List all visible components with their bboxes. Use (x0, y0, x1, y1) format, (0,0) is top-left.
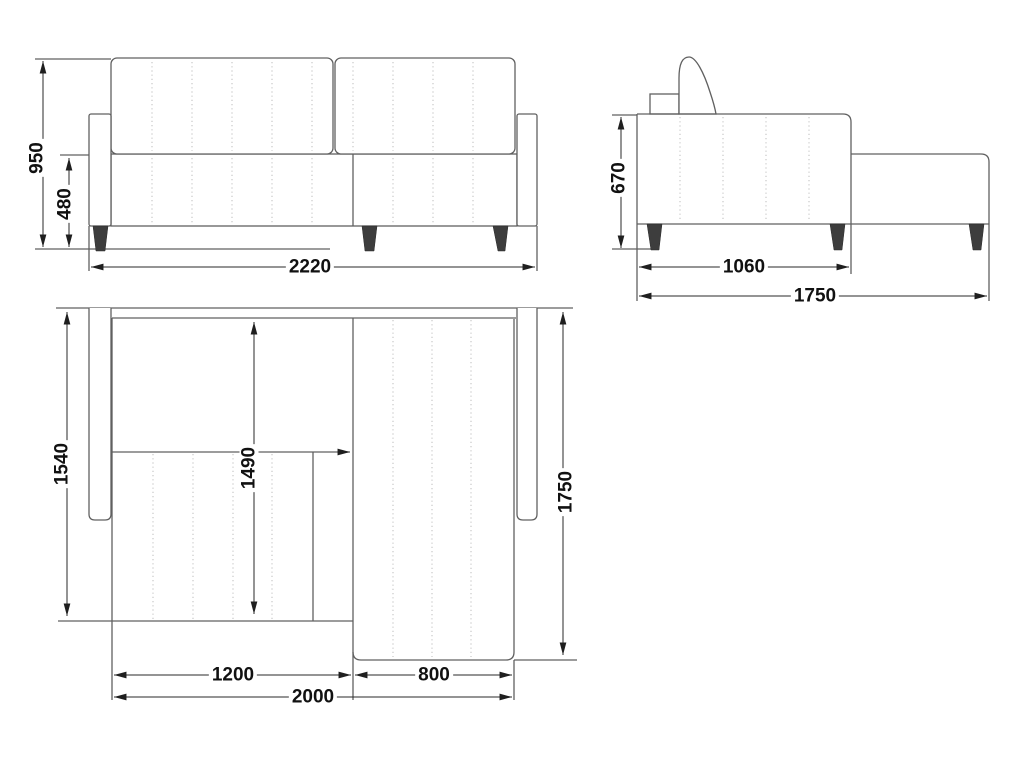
dim-label-side-overall-depth: 1750 (791, 287, 839, 306)
sofa-leg (647, 224, 662, 250)
chaise-top (851, 154, 989, 162)
dim-label-front-overall-height: 950 (28, 139, 47, 177)
armrest-right (517, 114, 537, 226)
side-view (612, 57, 989, 301)
technical-drawing-svg (0, 0, 1024, 768)
dim-label-top-inner-width: 2000 (289, 688, 337, 707)
head-pillow (650, 94, 679, 114)
sofa-leg (93, 226, 108, 251)
plan-chaise-stitch-lines (393, 320, 471, 657)
front-view (35, 58, 537, 271)
top-view (56, 308, 577, 700)
back-cushion-profile (679, 57, 716, 114)
backrest-cushion-left (111, 58, 333, 154)
dim-label-side-body-depth: 1060 (720, 258, 768, 277)
dim-label-top-chaise-width: 800 (415, 666, 453, 685)
sofa-leg (969, 224, 984, 250)
sofa-dimension-drawing: 950 480 2220 670 1060 1750 1540 1490 175… (0, 0, 1024, 768)
armrest-left (89, 114, 111, 226)
chaise-bottom-line (353, 319, 514, 660)
side-stitch-lines (680, 117, 809, 222)
sofa-leg (830, 224, 845, 250)
armrest-right-plan (517, 308, 537, 520)
dim-label-top-chaise-depth: 1750 (557, 468, 576, 516)
seat-base (111, 154, 517, 226)
dim-label-top-seat-width: 1200 (209, 666, 257, 685)
backrest-cushion-right (335, 58, 515, 154)
dim-label-front-overall-width: 2220 (286, 258, 334, 277)
armrest-left-plan (89, 308, 111, 520)
dim-label-side-seat-back-height: 670 (610, 159, 629, 197)
sofa-body-top (637, 114, 851, 122)
dim-label-front-seat-height: 480 (56, 185, 75, 223)
dim-label-top-inner-depth: 1490 (240, 444, 259, 492)
sofa-leg (493, 226, 508, 251)
sofa-leg (362, 226, 377, 251)
dim-label-top-left-depth: 1540 (53, 440, 72, 488)
